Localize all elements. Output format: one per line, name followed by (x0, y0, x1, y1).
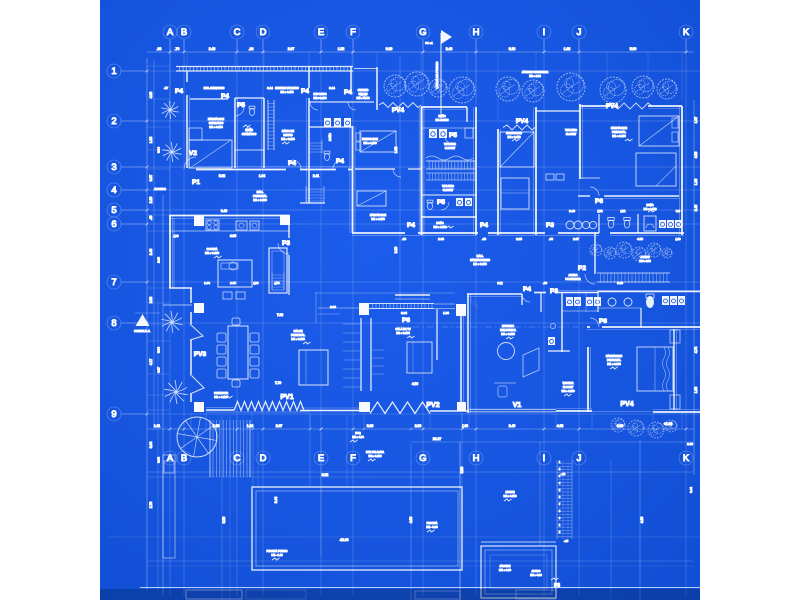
svg-text:C: C (234, 453, 241, 464)
svg-text:NE - 1.80: NE - 1.80 (271, 553, 283, 557)
svg-text:H: H (473, 27, 480, 38)
svg-text:2.20: 2.20 (394, 247, 398, 254)
svg-text:P4: P4 (336, 158, 344, 165)
svg-text:7.28: 7.28 (277, 313, 283, 317)
svg-text:2.68: 2.68 (438, 237, 444, 241)
svg-text:(.46: (.46 (462, 424, 468, 428)
svg-text:P3: P3 (550, 288, 558, 295)
svg-text:.79: .79 (175, 47, 180, 51)
svg-text:D: D (260, 27, 267, 38)
svg-text:B: B (181, 453, 187, 464)
svg-text:PATIO DE: PATIO DE (282, 129, 294, 133)
svg-text:2.7): 2.7) (497, 281, 502, 285)
svg-text:4.50: 4.50 (694, 152, 698, 159)
svg-text:1.03: 1.03 (694, 387, 698, 394)
svg-text:WALKING: WALKING (565, 128, 577, 132)
svg-text:5.04: 5.04 (157, 347, 161, 353)
svg-text:HALL: HALL (257, 190, 264, 194)
svg-text:2.67: 2.67 (276, 424, 283, 428)
svg-text:HABITACION: HABITACION (362, 137, 378, 141)
svg-text:P4: P4 (480, 222, 488, 229)
svg-text:2.41: 2.41 (313, 174, 319, 178)
svg-text:3.14: 3.14 (267, 86, 273, 90)
svg-text:SERVICIOS: SERVICIOS (242, 132, 257, 136)
svg-text:4.50: 4.50 (412, 382, 418, 386)
svg-text:I: I (543, 453, 546, 464)
svg-text:K: K (683, 27, 690, 38)
svg-text:BBQ: BBQ (355, 431, 360, 435)
svg-text:8.92: 8.92 (322, 473, 329, 477)
svg-text:.90: .90 (482, 237, 487, 241)
svg-text:PRINCIPAL: PRINCIPAL (607, 358, 621, 362)
svg-text:B: B (181, 27, 187, 38)
svg-text:4.60: 4.60 (230, 234, 236, 238)
svg-text:1.62: 1.62 (564, 47, 571, 51)
svg-text:2.08: 2.08 (415, 424, 422, 428)
svg-text:NE + 0.60: NE + 0.60 (352, 435, 364, 439)
svg-text:K: K (683, 453, 690, 464)
svg-text:P4: P4 (175, 88, 183, 95)
svg-text:P6: P6 (599, 318, 607, 325)
svg-text:H: H (473, 453, 480, 464)
svg-text:6.44: 6.44 (274, 497, 278, 504)
svg-text:1.84: 1.84 (259, 174, 265, 178)
svg-text:PV3: PV3 (194, 351, 207, 358)
svg-text:3.04: 3.04 (401, 311, 407, 315)
svg-text:P3: P3 (554, 583, 560, 589)
svg-text:6.64: 6.64 (157, 457, 161, 463)
svg-text:G: G (419, 453, 426, 464)
svg-text:HABITACION: HABITACION (506, 131, 522, 135)
svg-text:PISCINA: PISCINA (427, 521, 438, 525)
svg-text:4.60: 4.60 (640, 517, 644, 524)
svg-text:P4: P4 (523, 286, 531, 293)
svg-text:2.20: 2.20 (149, 197, 153, 204)
svg-text:NE + 0.178: NE + 0.178 (280, 90, 294, 94)
svg-text:2.46: 2.46 (694, 205, 698, 212)
svg-text:CLOSET: CLOSET (445, 146, 456, 150)
svg-text:(.70: (.70 (274, 281, 280, 285)
svg-text:.90: .90 (549, 237, 554, 241)
svg-text:23.27: 23.27 (433, 437, 442, 441)
svg-text:.90: .90 (402, 237, 407, 241)
svg-text:04 +1: 04 +1 (425, 41, 433, 45)
svg-text:4.17: 4.17 (149, 359, 153, 366)
svg-text:P4: P4 (407, 222, 415, 229)
svg-text:P6: P6 (595, 198, 603, 205)
svg-text:P.TO DE AGUA: P.TO DE AGUA (366, 450, 384, 454)
svg-text:CLOSET: CLOSET (563, 385, 574, 389)
svg-text:G: G (419, 27, 426, 38)
svg-text:1.04: 1.04 (204, 281, 210, 285)
svg-text:2.67: 2.67 (288, 47, 295, 51)
svg-text:SALA DE TV: SALA DE TV (395, 327, 411, 331)
svg-text:CUARTO: CUARTO (358, 88, 369, 92)
svg-text:6: 6 (111, 219, 116, 230)
svg-text:JARDIN: JARDIN (640, 255, 649, 259)
svg-text:HABITACION: HABITACION (611, 126, 627, 130)
svg-text:2.70: 2.70 (149, 502, 153, 509)
svg-text:4.17: 4.17 (157, 367, 161, 373)
svg-text:SERVICIOS: SERVICIOS (209, 121, 224, 125)
svg-text:NE + 0.178: NE + 0.178 (612, 134, 626, 138)
svg-text:1.26: 1.26 (694, 179, 698, 186)
svg-text:P5: P5 (237, 102, 245, 109)
svg-text:NE + 0.178: NE + 0.178 (368, 454, 382, 458)
svg-text:NE + 0.178: NE + 0.178 (473, 262, 487, 266)
svg-text:2.88: 2.88 (149, 297, 153, 304)
svg-text:NE + 0.60: NE + 0.60 (499, 568, 512, 572)
svg-text:A: A (167, 453, 174, 464)
svg-text:2.04: 2.04 (330, 305, 336, 309)
svg-text:1.52: 1.52 (338, 47, 345, 51)
svg-text:CLOSET: CLOSET (443, 188, 454, 192)
svg-text:(.90: (.90 (253, 281, 259, 285)
svg-text:1.11: 1.11 (154, 424, 160, 428)
svg-text:2.46: 2.46 (149, 249, 153, 256)
svg-text:NE + 0.178: NE + 0.178 (503, 494, 517, 498)
svg-text:DEPOSITO: DEPOSITO (313, 92, 326, 96)
svg-text:2.43: 2.43 (569, 209, 575, 213)
svg-text:1: 1 (111, 66, 116, 77)
svg-text:P6: P6 (402, 317, 410, 324)
svg-text:NE + 0.178: NE + 0.178 (253, 198, 267, 202)
svg-text:2.07: 2.07 (573, 237, 579, 241)
svg-text:BAÑO: BAÑO (327, 132, 332, 141)
svg-text:VESTIER: VESTIER (562, 381, 573, 385)
svg-text:NE + 0.00: NE + 0.00 (529, 74, 541, 78)
svg-text:P5: P5 (449, 132, 457, 139)
svg-text:J: J (577, 453, 582, 464)
svg-text:NE + 0.178: NE + 0.178 (205, 251, 220, 255)
svg-text:P3: P3 (546, 222, 554, 229)
svg-text:P4: P4 (221, 93, 229, 100)
svg-text:WALKING: WALKING (442, 184, 454, 188)
svg-text:HALL: HALL (477, 254, 484, 258)
svg-text:9.40: 9.40 (221, 209, 227, 213)
svg-text:NE + 0.178: NE + 0.178 (561, 389, 575, 393)
svg-text:JARDIN POSTERIOR: JARDIN POSTERIOR (522, 70, 548, 74)
svg-text:8: 8 (111, 318, 116, 329)
svg-text:9: 9 (111, 409, 116, 420)
svg-text:NE + 0.178: NE + 0.178 (371, 217, 385, 221)
svg-text:CLOSET: CLOSET (566, 132, 577, 136)
svg-text:.57: .57 (164, 86, 169, 90)
svg-text:6.64: 6.64 (149, 442, 153, 449)
svg-text:C: C (234, 27, 241, 38)
svg-text:CORTE A-A: CORTE A-A (134, 329, 150, 333)
svg-text:HABITACION: HABITACION (370, 213, 386, 217)
svg-text:.40: .40 (149, 216, 153, 221)
svg-text:1.07: 1.07 (694, 117, 698, 124)
svg-text:9.76: 9.76 (617, 281, 623, 285)
svg-text:-12.00: -12.00 (339, 538, 348, 542)
svg-text:(.70: (.70 (173, 234, 179, 238)
svg-text:7.70: 7.70 (275, 381, 281, 385)
svg-text:3: 3 (111, 162, 116, 173)
svg-text:2.48: 2.48 (209, 47, 216, 51)
svg-text:PRINCIPAL: PRINCIPAL (291, 333, 305, 337)
svg-text:1.55: 1.55 (230, 281, 236, 285)
svg-text:I: I (543, 27, 546, 38)
svg-text:ACERA: ACERA (569, 273, 578, 277)
svg-text:ROPAS: ROPAS (283, 133, 292, 137)
svg-text:A: A (167, 27, 174, 38)
svg-text:JARDIN: JARDIN (505, 490, 514, 494)
svg-text:P4: P4 (344, 89, 352, 96)
svg-text:1.06: 1.06 (443, 311, 449, 315)
svg-text:PRINCIPAL: PRINCIPAL (612, 130, 626, 134)
svg-text:V2: V2 (189, 150, 197, 157)
svg-text:HABITACION: HABITACION (606, 354, 622, 358)
svg-text:8.44: 8.44 (689, 487, 693, 493)
svg-text:BIBLIOTECA: BIBLIOTECA (500, 328, 516, 332)
svg-text:4.03: 4.03 (149, 92, 153, 99)
svg-text:NE + 0.178: NE + 0.178 (396, 331, 410, 335)
svg-text:ACCESO: ACCESO (154, 187, 167, 191)
svg-text:PRINCIPAL: PRINCIPAL (253, 194, 267, 198)
svg-text:PV4: PV4 (516, 118, 529, 125)
svg-text:P5: P5 (437, 199, 445, 206)
svg-text:NE + 0.178: NE + 0.178 (291, 337, 305, 341)
svg-text:NE + 0.178: NE + 0.178 (363, 141, 377, 145)
svg-text:NE + 0.178: NE + 0.178 (281, 137, 295, 141)
svg-text:4.00: 4.00 (409, 517, 413, 524)
svg-text:5.32: 5.32 (219, 174, 225, 178)
svg-text:4.56: 4.56 (637, 237, 643, 241)
svg-text:9.26: 9.26 (367, 424, 374, 428)
svg-text:COMEDOR: COMEDOR (214, 391, 228, 395)
svg-text:SALON: SALON (293, 329, 302, 333)
svg-text:ESTUDIO: ESTUDIO (502, 324, 514, 328)
svg-text:J: J (577, 27, 582, 38)
svg-text:4.68: 4.68 (557, 424, 564, 428)
svg-text:P1: P1 (192, 179, 200, 186)
svg-text:5.50: 5.50 (222, 517, 226, 524)
svg-text:P3: P3 (282, 240, 290, 247)
svg-text:MUEBLE DE LINOS: MUEBLE DE LINOS (275, 86, 299, 90)
svg-text:3.13: 3.13 (509, 47, 516, 51)
svg-text:-.60: -.60 (561, 472, 566, 476)
svg-text:.24: .24 (249, 47, 254, 51)
svg-text:E: E (318, 453, 324, 464)
svg-text:5: 5 (111, 205, 116, 216)
svg-text:NE + 0.178: NE + 0.178 (507, 135, 521, 139)
svg-text:9.26: 9.26 (386, 47, 393, 51)
svg-text:PISCINA FONDO: PISCINA FONDO (266, 549, 287, 553)
svg-text:NE + 0.178: NE + 0.178 (433, 225, 447, 229)
svg-text:2.48: 2.48 (446, 47, 453, 51)
svg-text:PV4: PV4 (392, 107, 405, 114)
svg-text:PV2: PV2 (426, 402, 439, 409)
svg-text:P4: P4 (288, 160, 296, 167)
svg-text:NE - 0.90: NE - 0.90 (426, 525, 438, 529)
svg-text:NE + 0.178: NE + 0.178 (209, 125, 223, 129)
svg-text:2.49: 2.49 (509, 424, 516, 428)
svg-text:.80: .80 (543, 281, 548, 285)
svg-text:F: F (350, 453, 356, 464)
svg-text:(.72: (.72 (597, 209, 603, 213)
svg-text:JACUZZI: JACUZZI (499, 564, 510, 568)
svg-text:2.15: 2.15 (210, 86, 216, 90)
svg-text:NE + 0.90: NE + 0.90 (530, 573, 542, 577)
svg-text:3.14: 3.14 (329, 86, 335, 90)
svg-text:(.81: (.81 (620, 209, 626, 213)
svg-text:V1: V1 (513, 402, 522, 409)
svg-text:P2: P2 (578, 265, 586, 272)
svg-text:ASADO: ASADO (531, 569, 540, 573)
svg-text:2: 2 (111, 116, 116, 127)
svg-text:NE + 0.178: NE + 0.178 (501, 332, 515, 336)
svg-text:1.36: 1.36 (149, 137, 153, 144)
svg-text:PV1: PV1 (280, 394, 293, 401)
svg-text:D: D (260, 453, 267, 464)
svg-text:0.97: 0.97 (149, 175, 153, 182)
svg-text:4: 4 (111, 185, 116, 196)
svg-text:4.74: 4.74 (694, 347, 698, 354)
svg-text:PV4: PV4 (606, 103, 619, 110)
svg-text:.80: .80 (157, 47, 162, 51)
svg-text:F: F (350, 27, 356, 38)
svg-text:2.85: 2.85 (516, 237, 522, 241)
svg-text:2.20: 2.20 (157, 257, 161, 263)
svg-text:5.00: 5.00 (630, 47, 637, 51)
svg-text:NE + 0.178: NE + 0.178 (607, 362, 621, 366)
svg-text:P4: P4 (301, 88, 309, 95)
svg-text:2.08: 2.08 (687, 442, 693, 446)
svg-text:E: E (318, 27, 324, 38)
svg-text:-.85: -.85 (564, 539, 569, 543)
svg-text:PV4: PV4 (620, 401, 633, 408)
svg-text:(.46: (.46 (675, 237, 681, 241)
svg-text:WALKING: WALKING (444, 142, 456, 146)
svg-text:7: 7 (111, 277, 116, 288)
